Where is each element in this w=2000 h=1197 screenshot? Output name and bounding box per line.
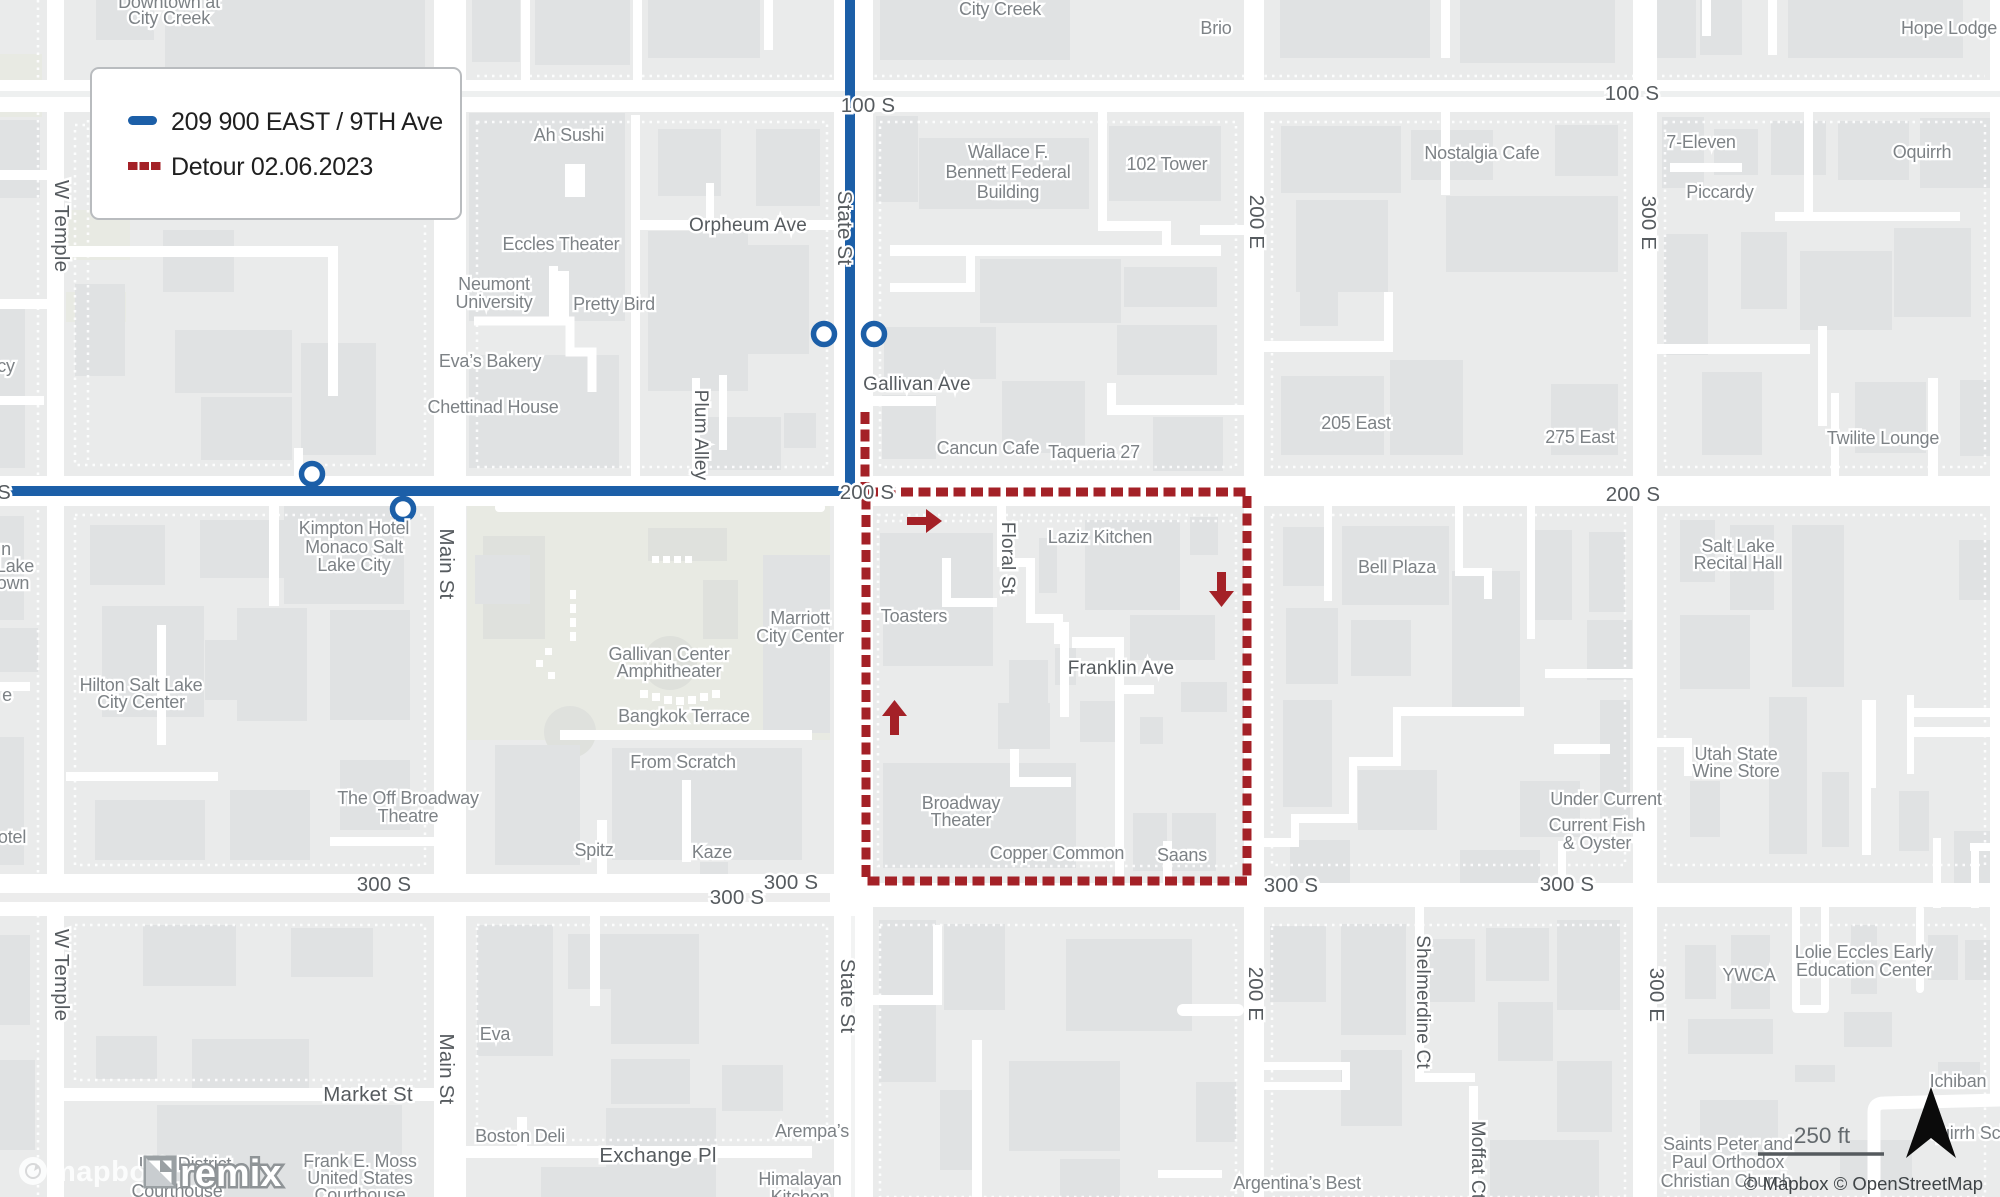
svg-text:Recital Hall: Recital Hall bbox=[1694, 553, 1783, 573]
svg-text:Education Center: Education Center bbox=[1796, 960, 1932, 980]
svg-text:State St: State St bbox=[836, 959, 859, 1034]
svg-text:Monaco Salt: Monaco Salt bbox=[305, 537, 403, 557]
svg-text:City Center: City Center bbox=[97, 692, 185, 712]
svg-text:remix: remix bbox=[180, 1153, 281, 1195]
svg-text:Plum Alley: Plum Alley bbox=[690, 390, 711, 481]
svg-text:Courthouse: Courthouse bbox=[314, 1185, 405, 1197]
svg-text:Detour 02.06.2023: Detour 02.06.2023 bbox=[171, 153, 373, 181]
svg-text:Marriott: Marriott bbox=[770, 608, 830, 628]
svg-text:own: own bbox=[0, 573, 29, 593]
svg-text:200 E: 200 E bbox=[1245, 195, 1268, 250]
svg-text:Building: Building bbox=[977, 182, 1039, 202]
svg-text:Under Current: Under Current bbox=[1550, 789, 1662, 809]
svg-text:Moffat Ct: Moffat Ct bbox=[1467, 1121, 1488, 1197]
svg-text:300 S: 300 S bbox=[764, 871, 819, 894]
svg-text:Brio: Brio bbox=[1200, 18, 1231, 38]
svg-text:200 S: 200 S bbox=[840, 481, 895, 504]
svg-text:Lolie Eccles Early: Lolie Eccles Early bbox=[1795, 942, 1934, 962]
svg-text:Bell Plaza: Bell Plaza bbox=[1358, 557, 1437, 577]
svg-text:Saints Peter and: Saints Peter and bbox=[1663, 1134, 1793, 1154]
svg-text:300 E: 300 E bbox=[1645, 968, 1668, 1023]
svg-text:102 Tower: 102 Tower bbox=[1127, 154, 1208, 174]
svg-text:Wine Store: Wine Store bbox=[1692, 761, 1779, 781]
svg-text:Twilite Lounge: Twilite Lounge bbox=[1827, 428, 1939, 448]
svg-text:Market St: Market St bbox=[323, 1083, 413, 1106]
svg-text:Saans: Saans bbox=[1157, 845, 1207, 865]
svg-text:100 S: 100 S bbox=[841, 94, 896, 117]
svg-text:Neumont: Neumont bbox=[458, 274, 530, 294]
svg-text:Eccles Theater: Eccles Theater bbox=[503, 234, 620, 254]
svg-text:205 East: 205 East bbox=[1321, 413, 1391, 433]
svg-text:275 East: 275 East bbox=[1545, 427, 1615, 447]
svg-text:7-Eleven: 7-Eleven bbox=[1666, 132, 1735, 152]
svg-text:Theatre: Theatre bbox=[378, 806, 439, 826]
svg-text:W Temple: W Temple bbox=[50, 929, 73, 1021]
svg-text:cy: cy bbox=[0, 356, 15, 376]
svg-text:Chettinad House: Chettinad House bbox=[427, 397, 558, 417]
svg-text:Current Fish: Current Fish bbox=[1549, 815, 1646, 835]
svg-text:Spitz: Spitz bbox=[574, 840, 613, 860]
svg-text:Copper Common: Copper Common bbox=[990, 843, 1124, 863]
svg-text:© Mapbox © OpenStreetMap: © Mapbox © OpenStreetMap bbox=[1744, 1173, 1983, 1194]
svg-text:Arempa’s: Arempa’s bbox=[775, 1121, 849, 1141]
svg-text:Bennett Federal: Bennett Federal bbox=[945, 162, 1070, 182]
svg-text:Kaze: Kaze bbox=[692, 842, 732, 862]
svg-text:Ichiban: Ichiban bbox=[1930, 1071, 1987, 1091]
svg-text:Gallivan Ave: Gallivan Ave bbox=[863, 374, 971, 395]
svg-text:200 E: 200 E bbox=[1244, 967, 1267, 1022]
svg-text:City Creek: City Creek bbox=[128, 8, 211, 28]
svg-text:From Scratch: From Scratch bbox=[630, 752, 736, 772]
svg-text:Nostalgia Cafe: Nostalgia Cafe bbox=[1424, 143, 1539, 163]
svg-text:Shelmerdine Ct: Shelmerdine Ct bbox=[1412, 935, 1433, 1069]
svg-text:Orpheum Ave: Orpheum Ave bbox=[689, 215, 807, 236]
svg-text:e: e bbox=[2, 685, 12, 705]
svg-text:State St: State St bbox=[833, 191, 856, 266]
svg-text:Pretty Bird: Pretty Bird bbox=[573, 294, 655, 314]
svg-text:Amphitheater: Amphitheater bbox=[617, 661, 722, 681]
svg-text:Laziz Kitchen: Laziz Kitchen bbox=[1048, 527, 1152, 547]
svg-text:300 S: 300 S bbox=[1540, 873, 1595, 896]
svg-text:Lake City: Lake City bbox=[317, 555, 390, 575]
svg-text:Exchange Pl: Exchange Pl bbox=[599, 1144, 716, 1167]
svg-text:Main St: Main St bbox=[435, 1034, 458, 1105]
svg-text:Taqueria 27: Taqueria 27 bbox=[1048, 442, 1140, 462]
svg-text:Argentina’s Best: Argentina’s Best bbox=[1233, 1173, 1361, 1193]
svg-text:Floral St: Floral St bbox=[997, 522, 1018, 595]
svg-text:Kitchen: Kitchen bbox=[771, 1187, 830, 1197]
svg-text:Theater: Theater bbox=[931, 810, 992, 830]
svg-text:Oquirrh: Oquirrh bbox=[1893, 142, 1952, 162]
svg-text:City Center: City Center bbox=[756, 626, 844, 646]
svg-text:Ah Sushi: Ah Sushi bbox=[534, 125, 604, 145]
svg-text:300 S: 300 S bbox=[357, 873, 412, 896]
svg-text:City Creek: City Creek bbox=[959, 0, 1042, 19]
svg-text:200 S: 200 S bbox=[1606, 483, 1661, 506]
svg-text:Piccardy: Piccardy bbox=[1686, 182, 1754, 202]
svg-text:300 E: 300 E bbox=[1637, 196, 1660, 251]
svg-text:The Off Broadway: The Off Broadway bbox=[337, 788, 479, 808]
svg-text:& Oyster: & Oyster bbox=[1563, 833, 1632, 853]
svg-text:Hope Lodge: Hope Lodge bbox=[1901, 18, 1997, 38]
svg-text:209 900 EAST / 9TH Ave: 209 900 EAST / 9TH Ave bbox=[171, 108, 443, 136]
svg-text:Bangkok Terrace: Bangkok Terrace bbox=[618, 706, 750, 726]
svg-text:Himalayan: Himalayan bbox=[758, 1169, 841, 1189]
svg-text:Boston Deli: Boston Deli bbox=[475, 1126, 565, 1146]
svg-text:300 S: 300 S bbox=[1264, 874, 1319, 897]
svg-text:Cancun Cafe: Cancun Cafe bbox=[937, 438, 1040, 458]
svg-text:Eva: Eva bbox=[480, 1024, 512, 1044]
svg-text:Wallace F.: Wallace F. bbox=[968, 142, 1048, 162]
svg-text:100 S: 100 S bbox=[1605, 82, 1660, 105]
svg-text:Kimpton Hotel: Kimpton Hotel bbox=[299, 518, 409, 538]
svg-text:S: S bbox=[0, 481, 11, 504]
svg-text:Toasters: Toasters bbox=[881, 606, 948, 626]
svg-text:Main St: Main St bbox=[435, 529, 458, 600]
svg-text:University: University bbox=[455, 292, 532, 312]
svg-text:Eva’s Bakery: Eva’s Bakery bbox=[439, 351, 542, 371]
svg-text:otel: otel bbox=[0, 827, 26, 847]
svg-text:W Temple: W Temple bbox=[50, 180, 73, 272]
svg-text:Franklin Ave: Franklin Ave bbox=[1068, 658, 1175, 679]
svg-text:300 S: 300 S bbox=[710, 886, 765, 909]
svg-text:250 ft: 250 ft bbox=[1794, 1123, 1851, 1148]
svg-text:YWCA: YWCA bbox=[1722, 965, 1775, 985]
